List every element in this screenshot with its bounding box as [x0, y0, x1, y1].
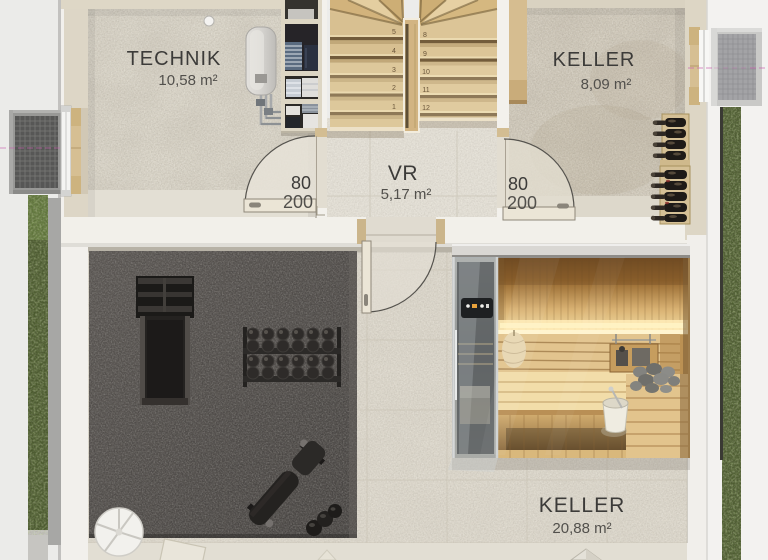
- svg-text:8: 8: [423, 32, 427, 39]
- svg-text:VR: VR: [388, 162, 418, 185]
- svg-text:80: 80: [508, 174, 528, 194]
- svg-text:2: 2: [392, 85, 396, 92]
- svg-text:1: 1: [392, 104, 396, 111]
- svg-text:200: 200: [507, 193, 537, 213]
- svg-text:200: 200: [283, 192, 313, 212]
- svg-text:KELLER: KELLER: [553, 49, 636, 71]
- svg-text:20,88 m²: 20,88 m²: [552, 520, 611, 537]
- svg-text:10,58 m²: 10,58 m²: [158, 72, 217, 89]
- svg-text:3: 3: [392, 67, 396, 74]
- svg-text:9: 9: [423, 51, 427, 58]
- svg-text:8,09 m²: 8,09 m²: [581, 76, 632, 93]
- svg-text:80: 80: [291, 173, 311, 193]
- svg-text:5: 5: [392, 29, 396, 36]
- svg-text:5,17 m²: 5,17 m²: [381, 186, 432, 203]
- svg-text:11: 11: [422, 87, 429, 94]
- svg-text:TECHNIK: TECHNIK: [127, 48, 222, 70]
- svg-text:KELLER: KELLER: [539, 494, 626, 517]
- svg-text:4: 4: [392, 48, 396, 55]
- svg-text:12: 12: [422, 105, 430, 112]
- svg-text:10: 10: [422, 69, 430, 76]
